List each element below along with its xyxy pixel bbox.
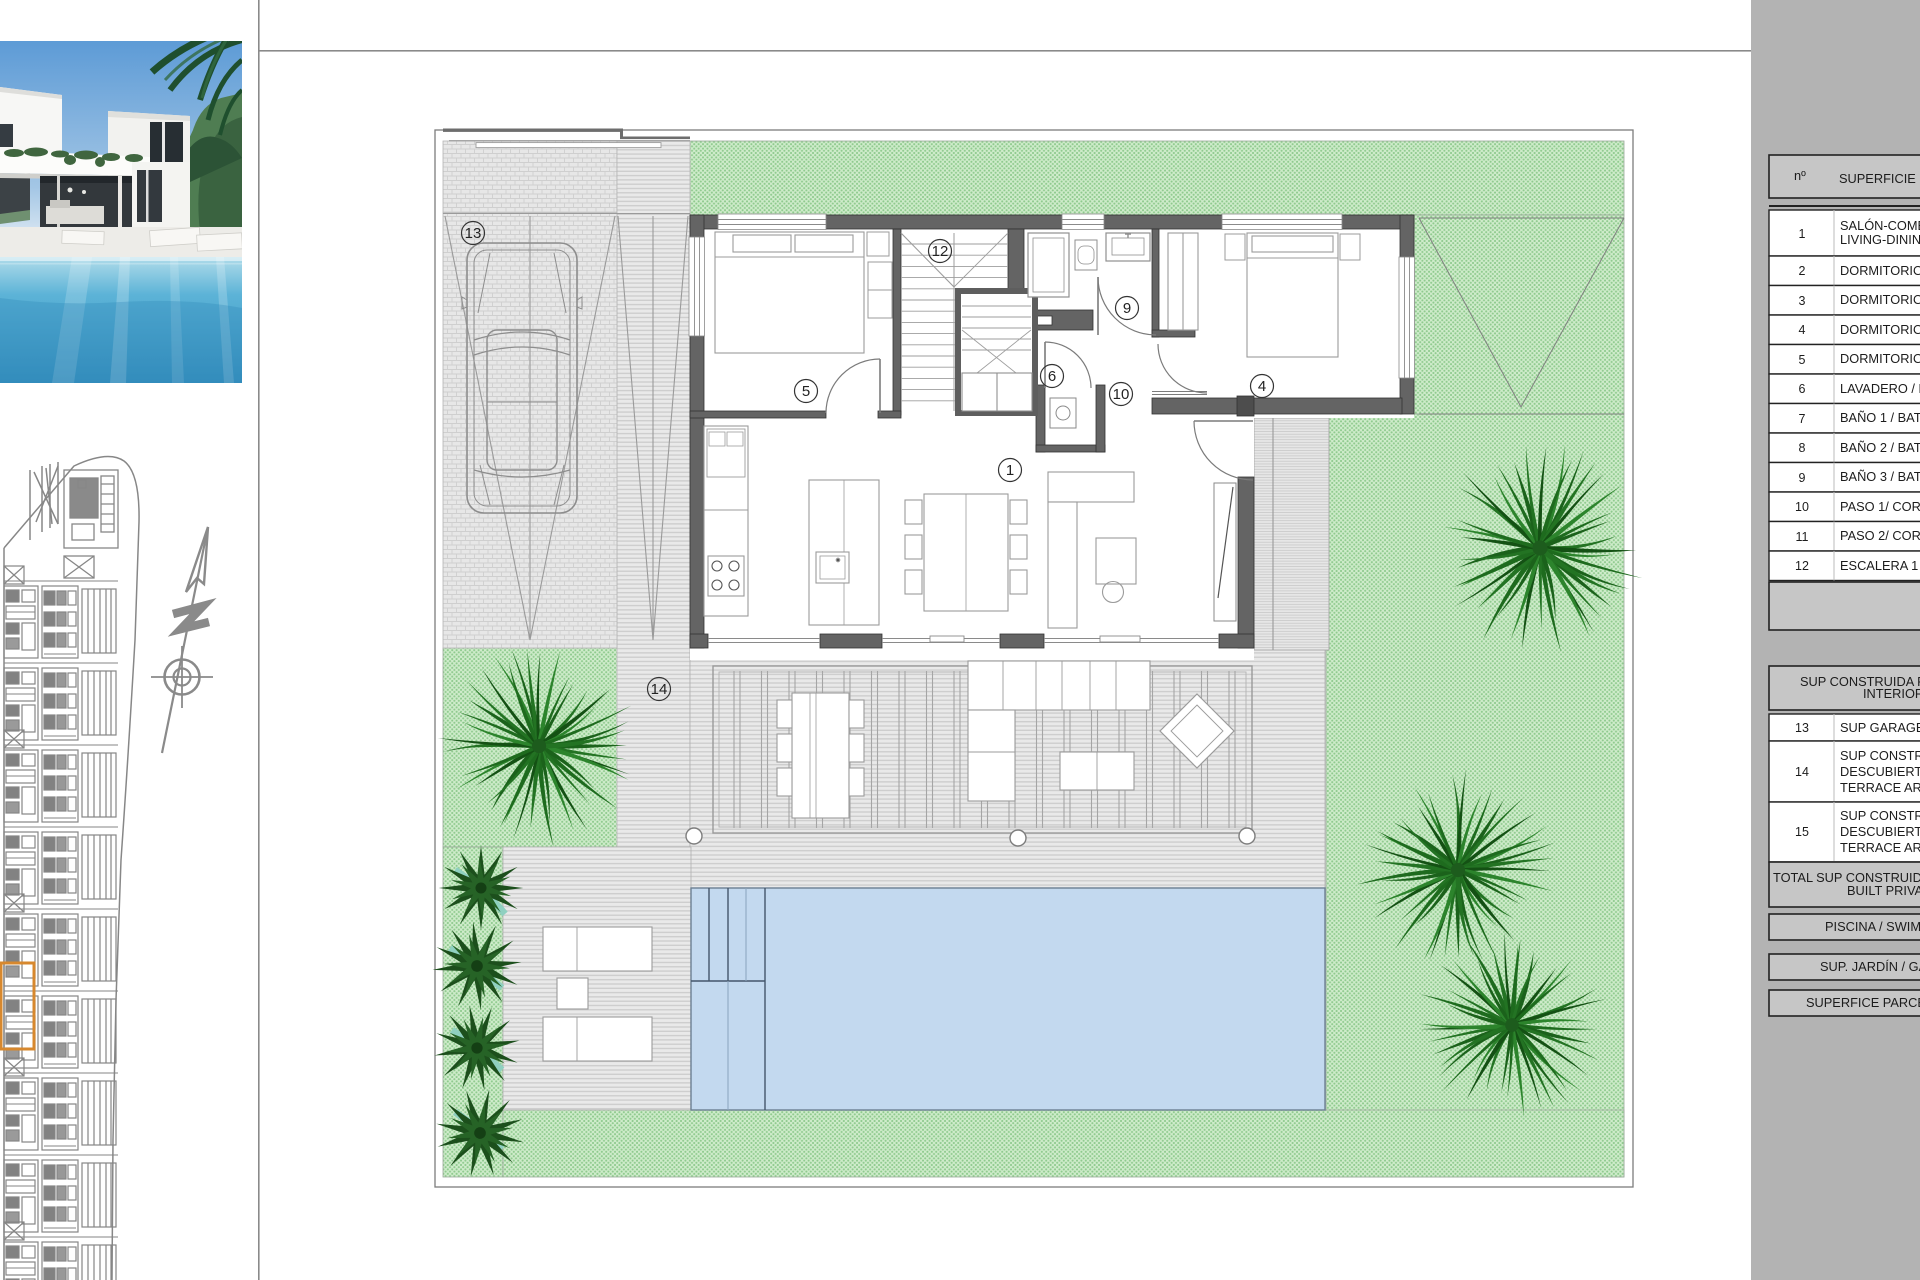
svg-text:SALÓN-COMEDOR / COCINA: SALÓN-COMEDOR / COCINA <box>1840 218 1920 233</box>
svg-text:LIVING-DINING ROOM / KITCHEN: LIVING-DINING ROOM / KITCHEN <box>1840 232 1920 247</box>
svg-text:7: 7 <box>1799 412 1806 426</box>
svg-text:DORMITORIO 3 / BEDROOM 3: DORMITORIO 3 / BEDROOM 3 <box>1840 322 1920 337</box>
svg-text:DESCUBIERTA / UNCOVERED: DESCUBIERTA / UNCOVERED <box>1840 764 1920 779</box>
svg-text:6: 6 <box>1799 382 1806 396</box>
svg-text:1: 1 <box>1006 462 1014 479</box>
svg-text:9: 9 <box>1123 300 1131 317</box>
svg-text:5: 5 <box>802 383 810 400</box>
svg-text:SUP CONSTRUIDA: SUP CONSTRUIDA <box>1840 808 1920 823</box>
svg-text:1: 1 <box>1799 227 1806 241</box>
svg-text:BAÑO 1 / BATHROOM 1: BAÑO 1 / BATHROOM 1 <box>1840 410 1920 425</box>
svg-text:14: 14 <box>1795 765 1809 779</box>
svg-text:BUILT PRIVATE AREA: BUILT PRIVATE AREA <box>1847 883 1920 898</box>
svg-text:PISCINA / SWIMMING POOL: PISCINA / SWIMMING POOL <box>1825 919 1920 934</box>
svg-text:5: 5 <box>1799 353 1806 367</box>
svg-text:14: 14 <box>651 681 668 698</box>
svg-text:SUPERFICIE UTIL / USEFUL AREA: SUPERFICIE UTIL / USEFUL AREA <box>1839 171 1920 186</box>
svg-text:4: 4 <box>1258 378 1266 395</box>
svg-text:4: 4 <box>1799 323 1806 337</box>
svg-text:DESCUBIERTA / UNCOVERED: DESCUBIERTA / UNCOVERED <box>1840 824 1920 839</box>
svg-text:DORMITORIO 2 / BEDROOM 2: DORMITORIO 2 / BEDROOM 2 <box>1840 292 1920 307</box>
svg-text:BAÑO 3 / BATHROOM 3: BAÑO 3 / BATHROOM 3 <box>1840 469 1920 484</box>
svg-text:INTERIOR BUILT AREA: INTERIOR BUILT AREA <box>1863 686 1920 701</box>
svg-text:12: 12 <box>1795 559 1809 573</box>
svg-text:DORMITORIO 4 / BEDROOM 4: DORMITORIO 4 / BEDROOM 4 <box>1840 351 1920 366</box>
svg-text:12: 12 <box>932 243 949 260</box>
svg-text:SUP GARAGE / GARAGE AREA: SUP GARAGE / GARAGE AREA <box>1840 720 1920 735</box>
svg-text:DORMITORIO 1 / BEDROOM 1: DORMITORIO 1 / BEDROOM 1 <box>1840 263 1920 278</box>
svg-text:ESCALERA 1 / STAIRS 1: ESCALERA 1 / STAIRS 1 <box>1840 558 1920 573</box>
svg-text:SUP CONSTRUIDA: SUP CONSTRUIDA <box>1840 748 1920 763</box>
svg-text:PASO 2/ CORRIDOR 2: PASO 2/ CORRIDOR 2 <box>1840 528 1920 543</box>
svg-text:nº: nº <box>1794 168 1806 183</box>
svg-text:SUPERFICE PARCELA / PLOT AREA: SUPERFICE PARCELA / PLOT AREA <box>1806 995 1920 1010</box>
svg-text:TERRACE AREA: TERRACE AREA <box>1840 840 1920 855</box>
svg-text:6: 6 <box>1048 368 1056 385</box>
svg-text:3: 3 <box>1799 294 1806 308</box>
svg-text:10: 10 <box>1795 500 1809 514</box>
svg-text:TERRACE AREA: TERRACE AREA <box>1840 780 1920 795</box>
svg-text:2: 2 <box>1799 264 1806 278</box>
svg-text:PASO 1/ CORRIDOR 1: PASO 1/ CORRIDOR 1 <box>1840 499 1920 514</box>
svg-text:15: 15 <box>1795 825 1809 839</box>
svg-text:10: 10 <box>1113 386 1130 403</box>
svg-text:9: 9 <box>1799 471 1806 485</box>
svg-text:BAÑO 2 / BATHROOM 2: BAÑO 2 / BATHROOM 2 <box>1840 440 1920 455</box>
svg-text:13: 13 <box>1795 721 1809 735</box>
svg-text:SUP. JARDÍN / GARDEN AREA: SUP. JARDÍN / GARDEN AREA <box>1820 959 1920 974</box>
svg-text:8: 8 <box>1799 441 1806 455</box>
svg-text:LAVADERO / LAUNDRY: LAVADERO / LAUNDRY <box>1840 381 1920 396</box>
svg-text:13: 13 <box>465 225 482 242</box>
svg-text:11: 11 <box>1796 530 1809 544</box>
